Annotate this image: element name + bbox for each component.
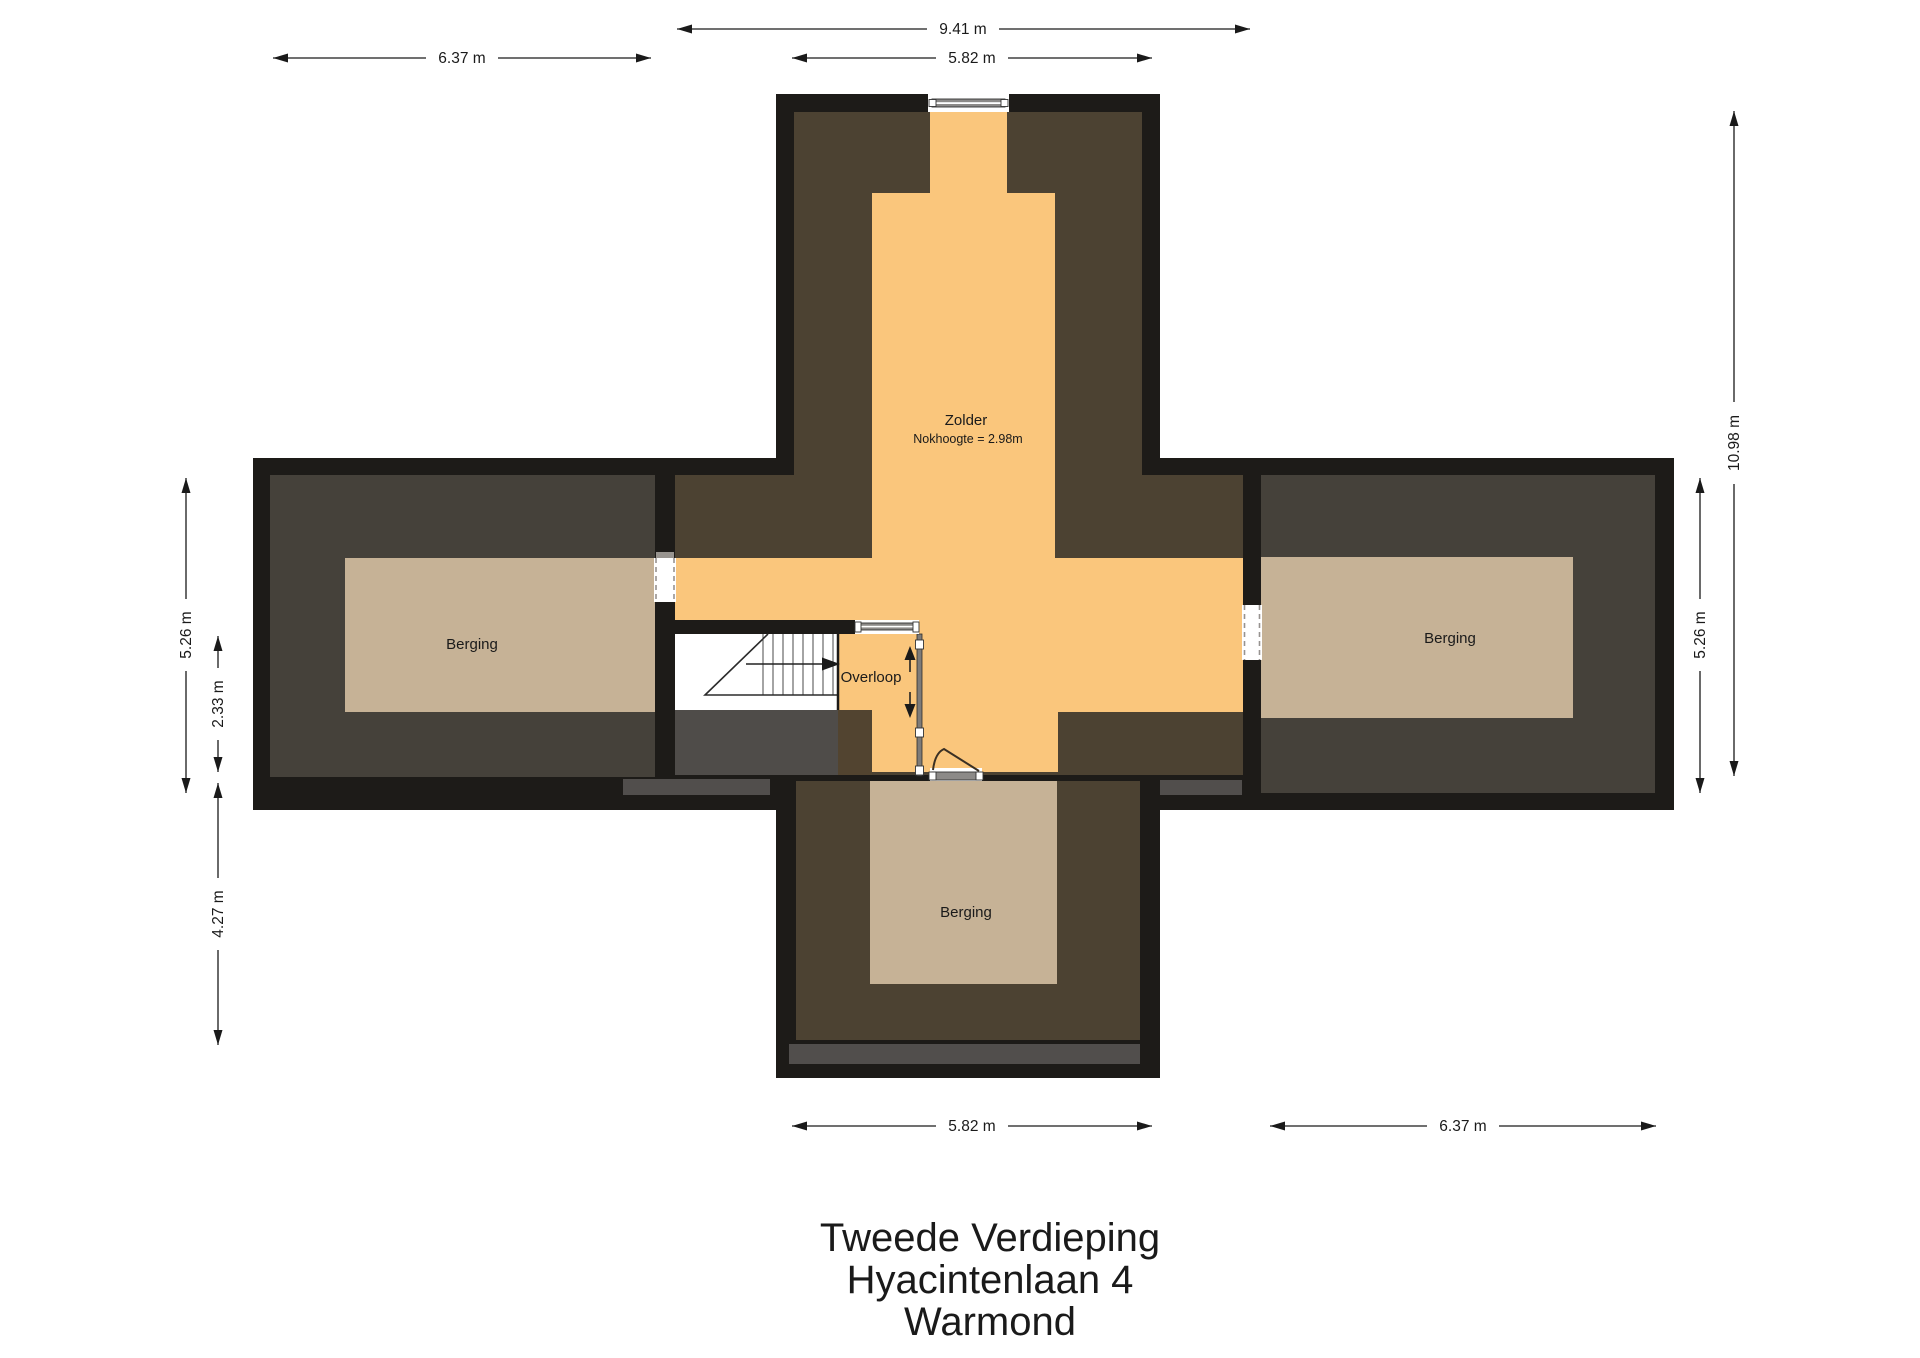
overlay-gray-area <box>675 710 838 775</box>
title-line-2: Hyacintenlaan 4 <box>847 1258 1134 1302</box>
dim-label: 9.41 m <box>939 21 986 38</box>
dimension-left-bottom-wing: 4.27 m <box>210 783 228 1045</box>
strip-bottom-wing <box>789 1044 1140 1064</box>
room-label-berging-left: Berging <box>446 636 498 653</box>
top-window <box>928 92 1009 112</box>
dim-label: 5.82 m <box>948 1118 995 1135</box>
dimension-bottom-center-wing: 5.82 m <box>792 1118 1152 1136</box>
strip-right-junction <box>1160 780 1242 795</box>
dimension-left-stair-zone: 2.33 m <box>210 636 228 772</box>
door-opening-left <box>654 552 676 602</box>
dimension-left-wing-depth: 5.26 m <box>178 478 196 793</box>
title-line-3: Warmond <box>904 1300 1076 1344</box>
dimension-bottom-right-wing: 6.37 m <box>1270 1118 1656 1136</box>
dim-label: 6.37 m <box>438 50 485 67</box>
overlay-brown-area <box>838 710 872 775</box>
dimension-top-span: 9.41 m <box>677 21 1250 39</box>
staircase <box>675 620 857 710</box>
title-line-1: Tweede Verdieping <box>820 1216 1160 1260</box>
dimension-right-total: 10.98 m <box>1726 111 1744 776</box>
dim-label: 6.37 m <box>1439 1118 1486 1135</box>
dim-label: 5.82 m <box>948 50 995 67</box>
title-block: Tweede Verdieping Hyacintenlaan 4 Warmon… <box>820 1216 1160 1344</box>
room-label-berging-right: Berging <box>1424 630 1476 647</box>
dimension-top-center-wing: 5.82 m <box>792 50 1152 68</box>
dimension-top-left-wing: 6.37 m <box>273 50 651 68</box>
dim-label: 2.33 m <box>210 680 227 727</box>
dimension-right-wing-depth: 5.26 m <box>1692 478 1710 793</box>
floor-plan-canvas: Zolder Nokhoogte = 2.98m Berging Berging… <box>0 0 1920 1358</box>
dim-label: 5.26 m <box>1692 611 1709 658</box>
strip-left-wing <box>623 779 770 795</box>
door-opening-right <box>1242 605 1262 660</box>
room-label-overloop: Overloop <box>841 669 902 686</box>
low-headroom-overlay <box>675 710 872 775</box>
room-berging-right-area <box>1261 557 1573 718</box>
room-berging-bottom-area <box>870 781 1057 984</box>
dim-label: 4.27 m <box>210 890 227 937</box>
room-note-zolder: Nokhoogte = 2.98m <box>913 432 1022 446</box>
floorplan-page: Zolder Nokhoogte = 2.98m Berging Berging… <box>0 0 1920 1358</box>
stair-top-wall <box>675 620 857 634</box>
room-label-berging-bottom: Berging <box>940 904 992 921</box>
zolder-top-neck <box>930 111 1007 193</box>
stair-balustrade <box>916 634 924 776</box>
dim-label: 5.26 m <box>178 611 195 658</box>
interior-window <box>855 620 919 634</box>
dim-label: 10.98 m <box>1726 415 1743 471</box>
room-berging-left-area <box>345 558 655 712</box>
room-label-zolder: Zolder <box>945 412 988 429</box>
zolder-column <box>872 193 1055 558</box>
